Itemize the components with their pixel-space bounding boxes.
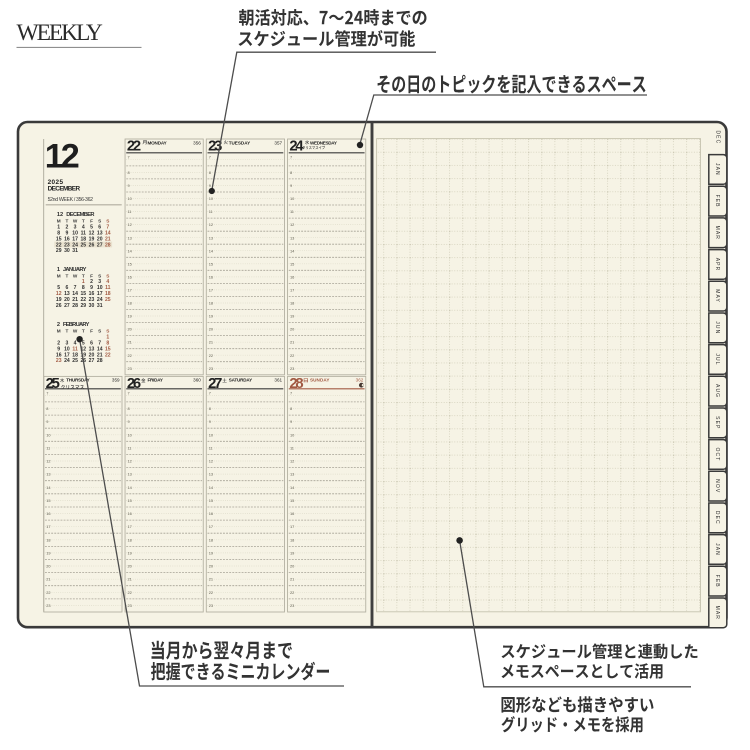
svg-text:8: 8 — [46, 406, 48, 411]
svg-text:JAN: JAN — [714, 163, 720, 176]
svg-text:13: 13 — [290, 472, 294, 477]
svg-text:8: 8 — [127, 406, 129, 411]
svg-text:21: 21 — [209, 577, 213, 582]
svg-text:15: 15 — [290, 261, 294, 266]
svg-text:APR: APR — [714, 258, 720, 272]
svg-text:FEB: FEB — [714, 195, 720, 208]
svg-text:359: 359 — [112, 378, 120, 383]
svg-text:17: 17 — [127, 524, 131, 529]
svg-text:18: 18 — [290, 537, 294, 542]
svg-text:28: 28 — [105, 242, 111, 248]
svg-text:DEC: DEC — [714, 511, 720, 525]
svg-text:22: 22 — [127, 139, 141, 155]
svg-text:OCT: OCT — [714, 448, 720, 462]
svg-text:JAN: JAN — [714, 543, 720, 556]
svg-text:9: 9 — [290, 419, 292, 424]
svg-text:22: 22 — [105, 352, 111, 358]
svg-text:DECEMBER: DECEMBER — [66, 212, 94, 218]
svg-text:11: 11 — [209, 209, 213, 214]
svg-text:362: 362 — [356, 378, 364, 383]
svg-text:7: 7 — [290, 390, 292, 395]
svg-text:26: 26 — [56, 303, 62, 309]
svg-text:W: W — [73, 273, 78, 278]
svg-text:13: 13 — [209, 472, 213, 477]
svg-text:361: 361 — [274, 378, 282, 383]
svg-text:25: 25 — [105, 297, 111, 303]
svg-text:FEB: FEB — [714, 575, 720, 588]
svg-text:7: 7 — [209, 154, 211, 159]
svg-text:19: 19 — [209, 314, 213, 319]
svg-text:S: S — [106, 329, 109, 334]
svg-text:SEP: SEP — [714, 416, 720, 429]
svg-text:F: F — [90, 273, 93, 278]
svg-text:F: F — [90, 329, 93, 334]
svg-text:21: 21 — [209, 340, 213, 345]
svg-text:23: 23 — [46, 603, 50, 608]
svg-text:NOV: NOV — [714, 479, 720, 493]
svg-text:23: 23 — [127, 366, 131, 371]
svg-text:21: 21 — [290, 577, 294, 582]
svg-text:356: 356 — [193, 140, 201, 145]
svg-text:11: 11 — [209, 445, 213, 450]
svg-text:16: 16 — [127, 511, 131, 516]
svg-text:18: 18 — [209, 537, 213, 542]
svg-text:17: 17 — [290, 524, 294, 529]
svg-text:31: 31 — [72, 248, 78, 254]
svg-text:23: 23 — [209, 603, 213, 608]
svg-text:21: 21 — [290, 340, 294, 345]
svg-text:30: 30 — [89, 303, 95, 309]
svg-text:8: 8 — [290, 406, 292, 411]
svg-text:M: M — [57, 329, 61, 334]
svg-text:9: 9 — [46, 419, 48, 424]
svg-text:12: 12 — [46, 459, 50, 464]
svg-text:12: 12 — [290, 459, 294, 464]
svg-text:22: 22 — [290, 353, 294, 358]
svg-text:22: 22 — [127, 353, 131, 358]
svg-text:DEC: DEC — [715, 130, 721, 144]
svg-text:22: 22 — [290, 590, 294, 595]
svg-text:S: S — [106, 219, 109, 224]
svg-text:S: S — [98, 219, 101, 224]
svg-text:T: T — [82, 219, 85, 224]
svg-text:15: 15 — [46, 498, 50, 503]
svg-text:24: 24 — [289, 139, 304, 155]
svg-text:7: 7 — [209, 390, 211, 395]
svg-text:17: 17 — [209, 288, 213, 293]
svg-text:FEBRUARY: FEBRUARY — [63, 322, 90, 328]
svg-text:26: 26 — [89, 242, 95, 248]
svg-text:19: 19 — [290, 314, 294, 319]
svg-text:27: 27 — [89, 358, 95, 364]
svg-text:16: 16 — [290, 274, 294, 279]
svg-text:18: 18 — [127, 537, 131, 542]
svg-text:11: 11 — [290, 209, 294, 214]
svg-text:9: 9 — [209, 419, 211, 424]
svg-text:25: 25 — [72, 358, 78, 364]
svg-text:W: W — [73, 329, 78, 334]
svg-text:7: 7 — [46, 390, 48, 395]
svg-text:25: 25 — [80, 242, 86, 248]
svg-text:23: 23 — [127, 603, 131, 608]
svg-text:17: 17 — [290, 288, 294, 293]
svg-text:31: 31 — [97, 303, 103, 309]
svg-text:17: 17 — [46, 524, 50, 529]
svg-text:S: S — [98, 273, 101, 278]
svg-text:16: 16 — [127, 274, 131, 279]
svg-text:2: 2 — [57, 322, 60, 328]
svg-text:T: T — [65, 219, 68, 224]
svg-text:7: 7 — [290, 154, 292, 159]
svg-text:22: 22 — [209, 590, 213, 595]
svg-text:12: 12 — [57, 212, 63, 218]
svg-text:1: 1 — [57, 267, 60, 273]
svg-text:23: 23 — [56, 358, 62, 364]
svg-text:29: 29 — [80, 303, 86, 309]
svg-text:24: 24 — [64, 358, 70, 364]
svg-text:23: 23 — [290, 603, 294, 608]
svg-text:12: 12 — [45, 138, 80, 176]
svg-text:AUG: AUG — [714, 384, 720, 398]
svg-text:M: M — [57, 273, 61, 278]
svg-text:M: M — [57, 219, 61, 224]
svg-text:S: S — [98, 329, 101, 334]
svg-text:30: 30 — [64, 248, 70, 254]
svg-text:27: 27 — [64, 303, 70, 309]
svg-text:22: 22 — [127, 590, 131, 595]
svg-text:MONDAY: MONDAY — [147, 140, 166, 145]
svg-text:15: 15 — [127, 498, 131, 503]
svg-text:28: 28 — [72, 303, 78, 309]
svg-text:15: 15 — [209, 261, 213, 266]
svg-text:19: 19 — [209, 551, 213, 556]
svg-text:16: 16 — [209, 274, 213, 279]
svg-text:8: 8 — [127, 170, 129, 175]
svg-text:MAR: MAR — [714, 606, 720, 620]
svg-text:52nd WEEK / 356-362: 52nd WEEK / 356-362 — [48, 197, 94, 203]
svg-text:21: 21 — [127, 577, 131, 582]
svg-text:W: W — [73, 219, 78, 224]
svg-text:19: 19 — [46, 551, 50, 556]
svg-text:23: 23 — [290, 366, 294, 371]
svg-text:29: 29 — [56, 248, 62, 254]
svg-text:19: 19 — [127, 551, 131, 556]
svg-text:13: 13 — [209, 235, 213, 240]
svg-text:22: 22 — [46, 590, 50, 595]
svg-text:7: 7 — [127, 390, 129, 395]
svg-text:28: 28 — [97, 358, 103, 364]
svg-text:TUESDAY: TUESDAY — [229, 140, 251, 145]
svg-text:11: 11 — [127, 209, 131, 214]
svg-text:18: 18 — [46, 537, 50, 542]
svg-text:357: 357 — [274, 140, 282, 145]
svg-text:16: 16 — [209, 511, 213, 516]
svg-text:12: 12 — [209, 222, 213, 227]
svg-text:19: 19 — [290, 551, 294, 556]
svg-text:18: 18 — [209, 301, 213, 306]
svg-text:T: T — [82, 329, 85, 334]
svg-text:18: 18 — [290, 301, 294, 306]
svg-text:16: 16 — [46, 511, 50, 516]
svg-text:T: T — [82, 273, 85, 278]
svg-text:16: 16 — [290, 511, 294, 516]
svg-text:17: 17 — [209, 524, 213, 529]
svg-text:23: 23 — [209, 366, 213, 371]
svg-text:11: 11 — [127, 445, 131, 450]
svg-text:MAY: MAY — [714, 289, 720, 303]
svg-text:12: 12 — [127, 222, 131, 227]
svg-text:8: 8 — [209, 170, 211, 175]
svg-text:WEDNESDAY: WEDNESDAY — [310, 140, 337, 145]
svg-text:15: 15 — [209, 498, 213, 503]
svg-text:18: 18 — [127, 301, 131, 306]
svg-text:SUNDAY: SUNDAY — [310, 378, 330, 383]
svg-text:T: T — [65, 273, 68, 278]
svg-text:8: 8 — [290, 170, 292, 175]
svg-text:9: 9 — [290, 183, 292, 188]
svg-text:8: 8 — [209, 406, 211, 411]
svg-text:9: 9 — [209, 183, 211, 188]
svg-text:17: 17 — [127, 288, 131, 293]
svg-text:7: 7 — [127, 154, 129, 159]
svg-text:FRIDAY: FRIDAY — [147, 378, 163, 383]
svg-text:JUL: JUL — [714, 353, 720, 365]
svg-text:22: 22 — [209, 353, 213, 358]
svg-text:F: F — [90, 219, 93, 224]
svg-text:12: 12 — [127, 459, 131, 464]
svg-text:13: 13 — [290, 235, 294, 240]
svg-text:11: 11 — [290, 445, 294, 450]
svg-text:DECEMBER: DECEMBER — [48, 185, 81, 192]
svg-text:S: S — [106, 273, 109, 278]
svg-text:12: 12 — [290, 222, 294, 227]
svg-text:JUN: JUN — [714, 321, 720, 334]
svg-text:JANUARY: JANUARY — [63, 267, 87, 273]
svg-text:9: 9 — [127, 419, 129, 424]
svg-text:21: 21 — [46, 577, 50, 582]
svg-text:19: 19 — [127, 314, 131, 319]
svg-text:13: 13 — [127, 235, 131, 240]
svg-text:MAR: MAR — [714, 226, 720, 240]
svg-text:15: 15 — [127, 261, 131, 266]
svg-text:27: 27 — [97, 242, 103, 248]
svg-text:T: T — [65, 329, 68, 334]
svg-text:WEEKLY: WEEKLY — [17, 20, 105, 46]
svg-text:9: 9 — [127, 183, 129, 188]
svg-text:12: 12 — [209, 459, 213, 464]
svg-text:SATURDAY: SATURDAY — [229, 378, 253, 383]
svg-text:13: 13 — [46, 472, 50, 477]
svg-text:360: 360 — [193, 378, 201, 383]
svg-text:15: 15 — [290, 498, 294, 503]
svg-text:11: 11 — [46, 445, 50, 450]
svg-text:13: 13 — [127, 472, 131, 477]
svg-text:21: 21 — [127, 340, 131, 345]
